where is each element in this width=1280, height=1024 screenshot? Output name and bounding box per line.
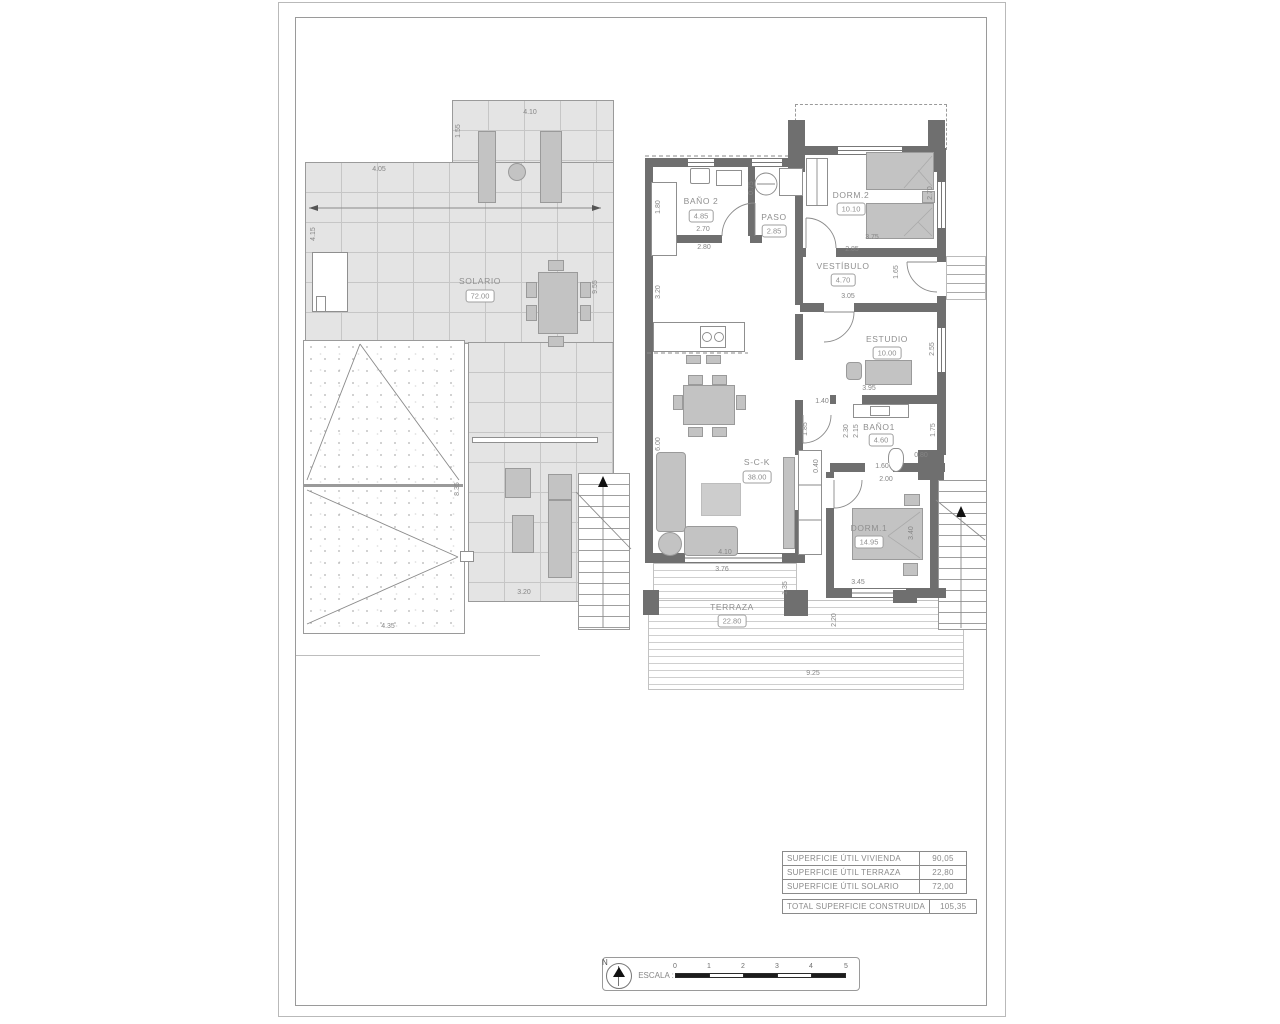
chair <box>580 282 591 298</box>
dorm2-side-window <box>937 182 946 228</box>
dim-label: 2.85 <box>845 246 859 254</box>
dim-label: 4.05 <box>372 166 386 174</box>
area-value-bano2: 4.85 <box>689 210 714 223</box>
sun-lounger <box>540 131 562 203</box>
dim-label: 1.85 <box>802 422 810 436</box>
desk-chair <box>846 362 862 380</box>
dim-label: 3.40 <box>908 526 916 540</box>
kitchen-counter <box>653 322 745 352</box>
pier-terraza-left <box>643 590 659 615</box>
cooktop <box>700 326 726 348</box>
area-value-dorm2: 10.10 <box>837 203 866 216</box>
table-row: SUPERFICIE ÚTIL TERRAZA 22,80 <box>783 866 967 880</box>
surface-label: SUPERFICIE ÚTIL SOLARIO <box>783 880 920 894</box>
dim-label: 2.70 <box>696 226 710 234</box>
sun-lounger <box>548 500 572 578</box>
wall-hall-left-b <box>795 314 803 360</box>
wall-vestibulo-bottom <box>800 303 945 312</box>
dorm2-wardrobe <box>806 158 828 206</box>
nightstand <box>903 563 918 576</box>
surface-value: 90,05 <box>920 852 967 866</box>
scale-tick: 4 <box>809 963 813 970</box>
chair <box>548 336 564 347</box>
surface-table: SUPERFICIE ÚTIL VIVIENDA 90,05 SUPERFICI… <box>782 851 967 894</box>
dim-label: 2.15 <box>853 424 861 438</box>
roof-panel-area <box>303 340 465 634</box>
room-label-sck: S-C-K <box>744 457 770 467</box>
door-opening <box>824 303 854 312</box>
lounge-chair <box>505 468 531 498</box>
dim-label: 2.80 <box>697 244 711 252</box>
dim-label: 3.05 <box>841 293 855 301</box>
dim-label: 4.35 <box>381 623 395 631</box>
dim-label: 2.70 <box>927 186 935 200</box>
north-arrow-icon <box>613 967 625 977</box>
dim-label: 2.30 <box>843 424 851 438</box>
scale-tick: 0 <box>673 963 677 970</box>
door-opening <box>806 248 836 257</box>
dim-label: 2.20 <box>831 613 839 627</box>
wall-bano1-right <box>937 400 946 455</box>
chair <box>580 305 591 321</box>
area-value-estudio: 10.00 <box>873 347 902 360</box>
scale-segment <box>811 973 846 978</box>
pier-dorm2-left <box>788 120 805 172</box>
dorm2-patio <box>795 104 947 150</box>
dorm2-bed <box>866 152 934 190</box>
scale-tick: 5 <box>844 963 848 970</box>
room-label-paso: PASO <box>761 212 786 222</box>
area-value-solario: 72.00 <box>466 290 495 303</box>
dim-label: 9.55 <box>592 280 600 294</box>
dim-label: 4.15 <box>310 227 318 241</box>
dim-label: 2.55 <box>929 342 937 356</box>
washbasin <box>716 170 742 186</box>
scale-tick: 2 <box>741 963 745 970</box>
chair <box>688 427 703 437</box>
surface-label: SUPERFICIE ÚTIL TERRAZA <box>783 866 920 880</box>
dim-label: 1.35 <box>782 581 790 595</box>
chair <box>736 395 746 410</box>
wall-dorm1-right <box>930 472 938 598</box>
dim-label: 1.55 <box>455 124 463 138</box>
dim-label: 0.40 <box>813 459 821 473</box>
sun-lounger <box>512 515 534 553</box>
toilet <box>690 168 710 184</box>
dim-label: 3.20 <box>517 589 531 597</box>
bano2-window <box>688 158 714 167</box>
total-value: 105,35 <box>930 900 977 914</box>
dim-label: 3.45 <box>851 579 865 587</box>
sofa-corner <box>656 452 686 532</box>
room-label-dorm1: DORM.1 <box>851 523 888 533</box>
area-value-dorm1: 14.95 <box>855 536 884 549</box>
surface-label: SUPERFICIE ÚTIL VIVIENDA <box>783 852 920 866</box>
dim-label: 1.80 <box>655 200 663 214</box>
bano1-sink <box>870 406 890 416</box>
lounge-chair <box>548 474 572 500</box>
tv-unit <box>783 457 795 549</box>
side-table <box>508 163 526 181</box>
table-row: TOTAL SUPERFICIE CONSTRUIDA 105,35 <box>783 900 977 914</box>
dim-label: 3.95 <box>862 385 876 393</box>
outdoor-dining-table <box>538 272 578 334</box>
area-value-paso: 2.85 <box>762 225 787 238</box>
chair <box>526 305 537 321</box>
door-opening <box>826 478 834 508</box>
scale-segment <box>743 973 778 978</box>
chair <box>673 395 683 410</box>
scale-segment <box>675 973 710 978</box>
dim-label: 1.65 <box>893 265 901 279</box>
wall-bano2-paso <box>748 166 755 236</box>
wall-hall-left-a <box>795 258 803 305</box>
north-label: N <box>602 958 608 967</box>
door-opening <box>836 395 862 404</box>
dim-label: 1.60 <box>875 463 889 471</box>
dim-label: 0.75 <box>748 181 756 195</box>
dim-label: 2.00 <box>879 476 893 484</box>
room-label-vestibulo: VESTÍBULO <box>816 261 869 271</box>
room-label-solario: SOLARIO <box>459 276 501 286</box>
chair <box>712 375 727 385</box>
surface-value: 72,00 <box>920 880 967 894</box>
dim-label: 3.76 <box>715 566 729 574</box>
rug <box>701 483 741 516</box>
estudio-window <box>937 328 946 372</box>
area-value-vestibulo: 4.70 <box>831 274 856 287</box>
pier-terraza-right <box>893 590 917 603</box>
dim-label: 4.10 <box>718 549 732 557</box>
floorplan-sheet: SOLARIO 72.00 4.10 1.55 4.05 4.15 9.55 8… <box>0 0 1280 1024</box>
room-label-bano1: BAÑO1 <box>863 422 895 432</box>
wall-paso-bottom <box>750 235 762 243</box>
room-label-terraza: TERRAZA <box>710 602 754 612</box>
area-value-bano1: 4.60 <box>869 434 894 447</box>
estudio-desk <box>865 360 912 385</box>
dim-label: 6.00 <box>655 437 663 451</box>
dim-label: 0.80 <box>914 452 928 460</box>
scale-tick: 1 <box>707 963 711 970</box>
bench-line <box>472 437 598 443</box>
bathtub <box>651 182 677 256</box>
total-label: TOTAL SUPERFICIE CONSTRUIDA <box>783 900 930 914</box>
scale-segment <box>709 973 744 978</box>
surface-total-table: TOTAL SUPERFICIE CONSTRUIDA 105,35 <box>782 899 977 914</box>
entry-staircase <box>938 480 987 630</box>
shower-tray <box>779 168 803 196</box>
dining-table <box>683 385 735 425</box>
paso-window <box>752 158 782 167</box>
solario-staircase <box>578 473 630 630</box>
room-label-dorm2: DORM.2 <box>833 190 870 200</box>
chair <box>712 427 727 437</box>
entry-steps <box>946 256 986 300</box>
surface-value: 22,80 <box>920 866 967 880</box>
chair <box>548 260 564 271</box>
table-row: SUPERFICIE ÚTIL VIVIENDA 90,05 <box>783 852 967 866</box>
bar-stool <box>706 355 721 364</box>
table-row: SUPERFICIE ÚTIL SOLARIO 72,00 <box>783 880 967 894</box>
toilet <box>888 448 904 472</box>
scale-segment <box>777 973 812 978</box>
chair <box>688 375 703 385</box>
dim-label: 9.25 <box>806 670 820 678</box>
area-value-sck: 38.00 <box>743 471 772 484</box>
dim-label: 3.75 <box>865 234 879 242</box>
area-value-terraza: 22.80 <box>718 615 747 628</box>
bar-stool <box>686 355 701 364</box>
chair <box>526 282 537 298</box>
sun-lounger <box>478 131 496 203</box>
dim-label: 3.20 <box>655 285 663 299</box>
scale-label: ESCALA : <box>638 972 674 980</box>
dim-label: 8.35 <box>454 482 462 496</box>
coffee-table <box>658 532 682 556</box>
roof-tab <box>460 551 474 562</box>
roof-ridge-line <box>303 484 463 487</box>
entry-door-opening <box>937 262 946 296</box>
dim-label: 1.40 <box>815 398 829 406</box>
nightstand <box>904 494 920 506</box>
planter-detail <box>316 296 326 312</box>
room-label-bano2: BAÑO 2 <box>684 196 719 206</box>
dim-label: 4.10 <box>523 109 537 117</box>
scale-tick: 3 <box>775 963 779 970</box>
plot-boundary-line <box>296 655 540 656</box>
dim-label: 1.75 <box>930 423 938 437</box>
north-compass <box>606 963 632 989</box>
room-label-estudio: ESTUDIO <box>866 334 908 344</box>
